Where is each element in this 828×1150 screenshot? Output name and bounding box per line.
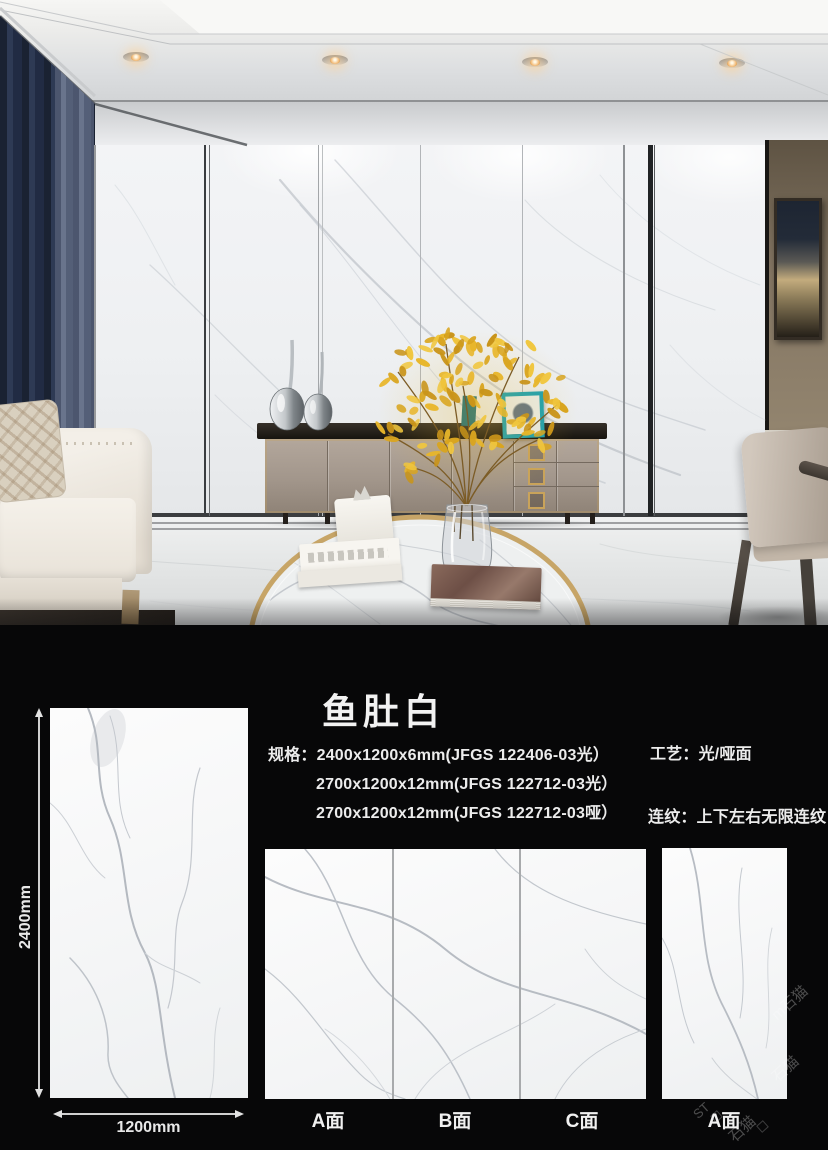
spec-label: 规格： (268, 747, 317, 764)
chair-backrest (740, 426, 828, 548)
spec-line-1: 规格：2400x1200x6mm(JFGS 122406-03光） (268, 741, 609, 765)
process-line: 工艺：光/哑面 (650, 740, 752, 764)
spec-value-2: 2700x1200x12mm(JFGS 122712-03光） (316, 776, 618, 793)
slab-veins (50, 708, 248, 1098)
pattern-value: 上下左右无限连纹 (697, 809, 827, 826)
panel-separator (392, 849, 394, 1099)
showroom-photo (0, 0, 828, 625)
yellow-flowers (374, 327, 570, 485)
panel-label-a: A面 (303, 1106, 353, 1133)
large-slab-swatch (50, 708, 248, 1098)
throw-pillow (0, 399, 67, 504)
width-dimension-arrow (57, 1113, 240, 1115)
spec-value-3: 2700x1200x12mm(JFGS 122712-03哑） (316, 805, 618, 822)
process-value: 光/哑面 (699, 746, 752, 763)
panel-veins (662, 848, 787, 1099)
spec-line-2: 2700x1200x12mm(JFGS 122712-03光） (316, 770, 618, 794)
spec-line-3: 2700x1200x12mm(JFGS 122712-03哑） (316, 799, 618, 823)
panel-label-c: C面 (557, 1106, 607, 1133)
continuous-panel-group (265, 849, 646, 1099)
panel-veins (265, 849, 646, 1099)
width-dimension-label: 1200mm (57, 1119, 240, 1137)
spec-value-1: 2400x1200x6mm(JFGS 122406-03光） (317, 747, 609, 764)
height-dimension-arrow (38, 712, 40, 1094)
pattern-line: 连纹：上下左右无限连纹 (648, 803, 826, 827)
product-title: 鱼肚白 (322, 683, 445, 735)
panel-label-b: B面 (430, 1106, 480, 1133)
watermark-icon (756, 1120, 769, 1133)
single-panel-swatch (662, 848, 787, 1099)
photo-bottom-shade (0, 598, 828, 625)
glass-vase (442, 505, 491, 571)
process-label: 工艺： (650, 746, 699, 763)
silver-vases (270, 340, 332, 430)
sofa-seat-cushion (0, 498, 136, 582)
pattern-label: 连纹： (648, 809, 697, 826)
marble-product-sheet: 鱼肚白 规格：2400x1200x6mm(JFGS 122406-03光） 27… (0, 0, 828, 1150)
panel-separator (519, 849, 521, 1099)
height-dimension-label: 2400mm (17, 877, 35, 957)
